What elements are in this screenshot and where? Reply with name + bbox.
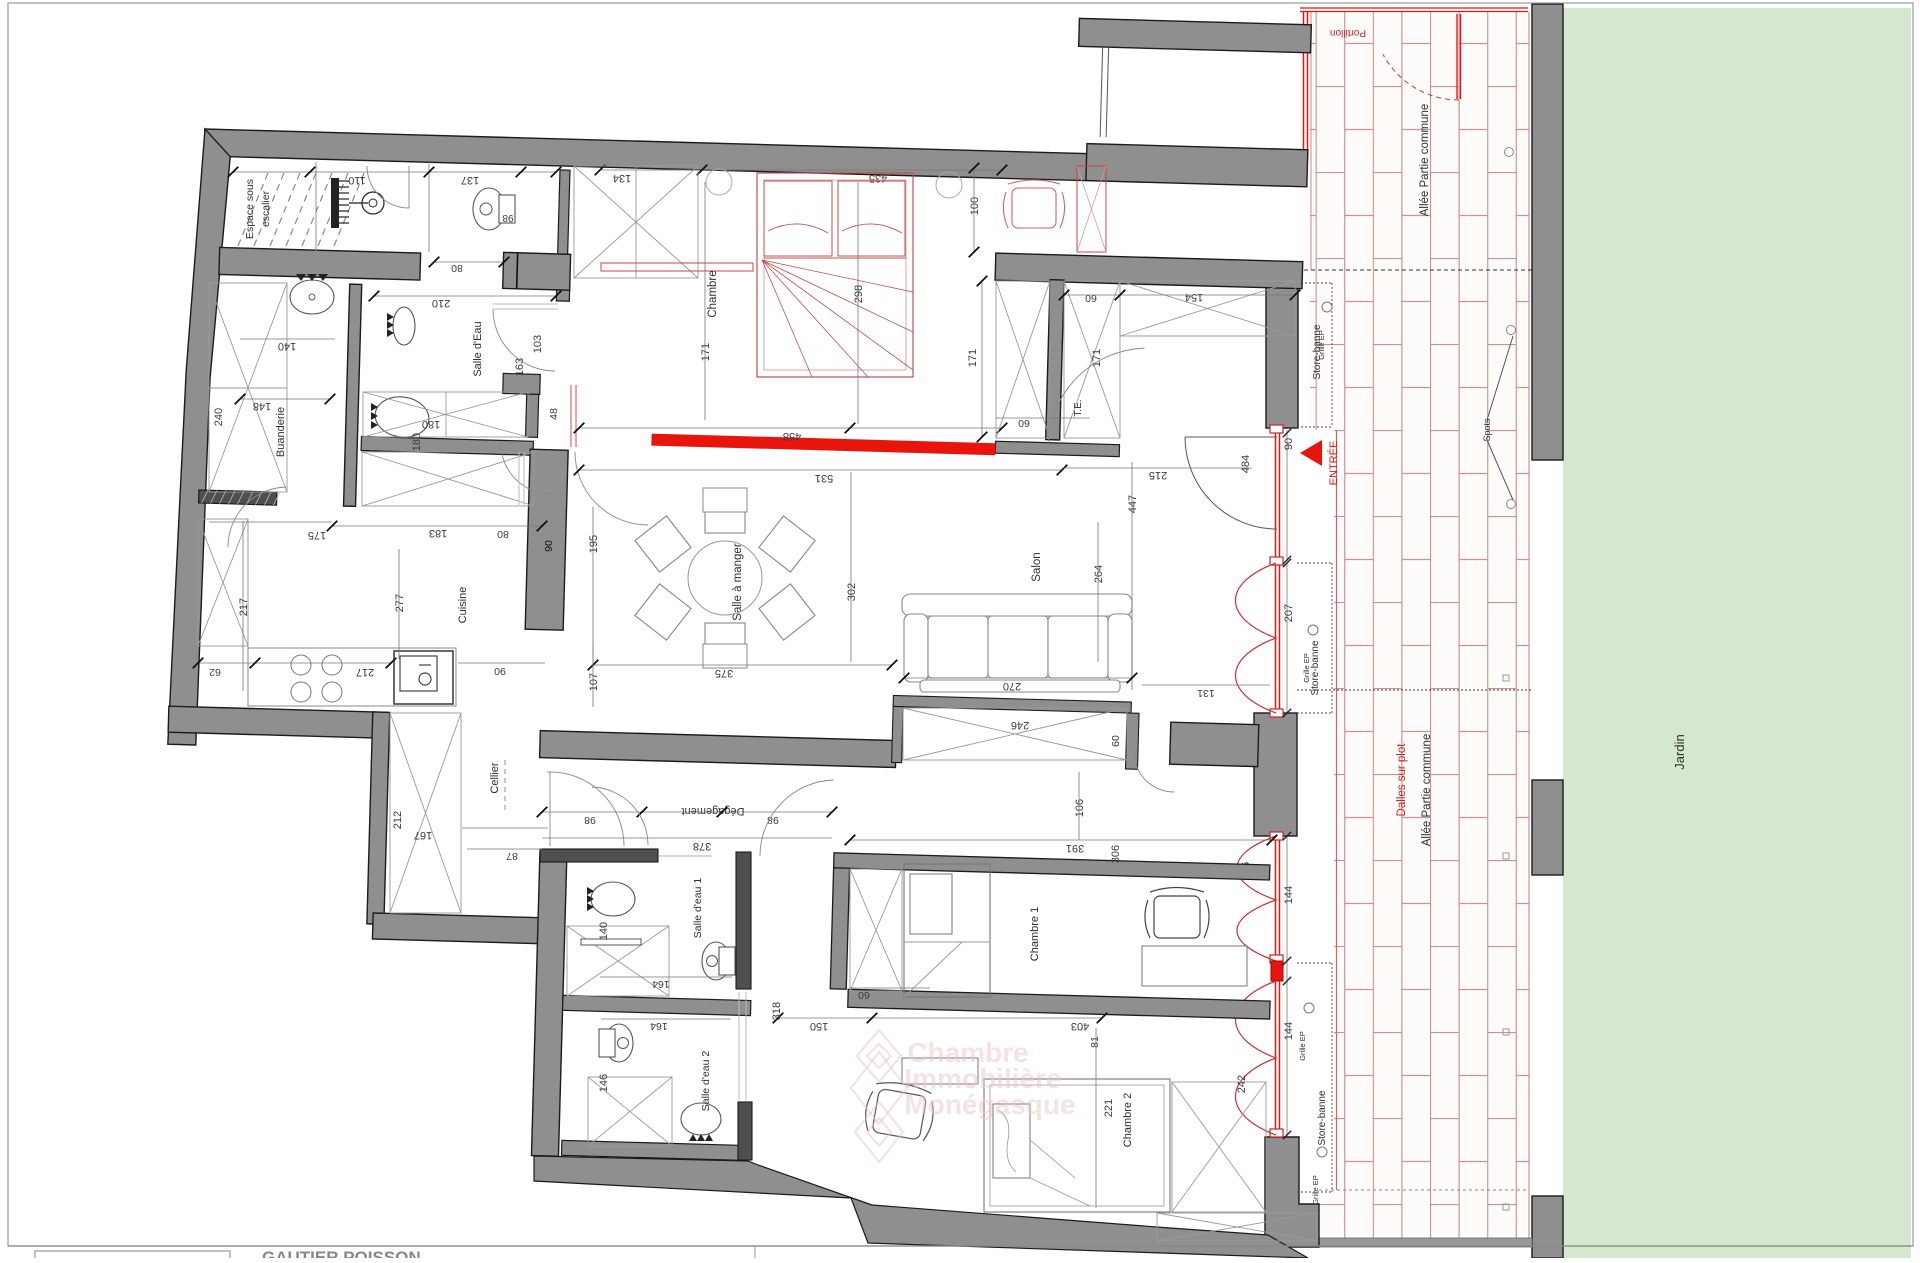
svg-text:Espace sous: Espace sous: [244, 179, 256, 239]
svg-text:Cellier: Cellier: [489, 762, 501, 794]
svg-text:140: 140: [278, 340, 296, 352]
svg-text:87: 87: [506, 850, 518, 862]
svg-text:Dalles sur plot: Dalles sur plot: [1396, 743, 1408, 817]
svg-text:Salle d'eau 1: Salle d'eau 1: [692, 878, 704, 939]
svg-text:154: 154: [1185, 291, 1203, 303]
svg-text:98: 98: [502, 212, 514, 223]
svg-text:180: 180: [411, 433, 423, 451]
svg-text:Chambre 1: Chambre 1: [1029, 907, 1041, 961]
svg-text:403: 403: [1071, 1020, 1089, 1032]
svg-text:escalier: escalier: [260, 190, 272, 227]
svg-text:144: 144: [1283, 886, 1295, 904]
svg-text:131: 131: [1197, 687, 1215, 699]
svg-text:183: 183: [429, 527, 447, 539]
svg-text:378: 378: [693, 840, 711, 852]
svg-text:90: 90: [1283, 438, 1295, 450]
svg-text:GAUTIER POISSON: GAUTIER POISSON: [262, 1248, 421, 1258]
svg-text:484: 484: [1240, 455, 1252, 473]
svg-text:Chambre 2: Chambre 2: [1122, 1093, 1134, 1147]
svg-text:Buanderie: Buanderie: [275, 407, 287, 457]
svg-text:298: 298: [853, 285, 865, 303]
svg-text:106: 106: [1074, 799, 1086, 817]
svg-text:270: 270: [1003, 680, 1021, 692]
svg-text:60: 60: [1018, 417, 1030, 429]
svg-text:110: 110: [348, 174, 366, 186]
svg-text:Grille EP: Grille EP: [1311, 1175, 1320, 1205]
svg-text:306: 306: [1110, 845, 1122, 863]
svg-text:Portillon: Portillon: [1330, 27, 1366, 38]
svg-text:Spots: Spots: [1482, 418, 1492, 442]
svg-text:140: 140: [598, 922, 610, 940]
svg-text:Grille EP: Grille EP: [1298, 1031, 1307, 1061]
svg-text:90: 90: [494, 665, 506, 677]
svg-text:Monégasque: Monégasque: [904, 1089, 1075, 1120]
svg-text:375: 375: [715, 667, 733, 679]
svg-text:150: 150: [810, 1020, 828, 1032]
svg-text:277: 277: [394, 594, 406, 612]
svg-text:195: 195: [588, 535, 600, 553]
svg-text:435: 435: [869, 172, 887, 184]
svg-text:60: 60: [1110, 735, 1122, 747]
svg-text:246: 246: [1011, 719, 1029, 731]
svg-text:80: 80: [451, 262, 463, 274]
svg-text:144: 144: [1283, 1022, 1295, 1040]
svg-text:221: 221: [1103, 1099, 1115, 1117]
svg-text:98: 98: [584, 814, 596, 826]
svg-text:207: 207: [1283, 604, 1295, 622]
svg-text:242: 242: [1236, 1075, 1248, 1093]
svg-text:60: 60: [1085, 292, 1097, 304]
svg-text:Allée Partie commune: Allée Partie commune: [1419, 104, 1431, 217]
svg-text:137: 137: [461, 174, 479, 186]
svg-text:90: 90: [543, 540, 555, 552]
svg-text:Cuisine: Cuisine: [457, 587, 469, 624]
svg-text:60: 60: [858, 989, 870, 1001]
svg-text:Grille EP: Grille EP: [1317, 330, 1326, 360]
svg-text:48: 48: [548, 408, 560, 420]
svg-text:391: 391: [1066, 842, 1084, 854]
svg-text:107: 107: [588, 673, 600, 691]
svg-text:240: 240: [213, 408, 225, 426]
svg-text:Salle à manger: Salle à manger: [732, 543, 744, 621]
svg-text:215: 215: [1149, 469, 1167, 481]
svg-text:164: 164: [652, 978, 670, 990]
svg-text:Salle d'Eau: Salle d'Eau: [472, 321, 484, 376]
svg-text:Store-banne: Store-banne: [1317, 1090, 1328, 1145]
svg-text:302: 302: [846, 583, 858, 601]
svg-text:458: 458: [783, 430, 801, 442]
svg-text:Allée Partie commune: Allée Partie commune: [1421, 734, 1433, 847]
svg-text:100: 100: [969, 197, 981, 215]
svg-text:217: 217: [356, 666, 374, 678]
svg-text:Grille EP: Grille EP: [1302, 653, 1311, 683]
svg-text:212: 212: [392, 811, 404, 829]
svg-text:Salon: Salon: [1031, 552, 1043, 581]
svg-text:Dégagement: Dégagement: [682, 805, 745, 817]
svg-text:447: 447: [1127, 495, 1139, 513]
svg-text:167: 167: [414, 829, 432, 841]
svg-text:80: 80: [497, 528, 509, 540]
svg-text:T.E.: T.E.: [1073, 399, 1084, 416]
svg-text:171: 171: [700, 343, 712, 361]
svg-text:Jardin: Jardin: [1672, 734, 1687, 769]
svg-text:Salle d'eau 2: Salle d'eau 2: [700, 1051, 712, 1112]
svg-text:175: 175: [308, 529, 326, 541]
svg-text:134: 134: [613, 172, 631, 184]
svg-text:ENTRÉE: ENTRÉE: [1327, 441, 1340, 486]
svg-text:103: 103: [532, 335, 544, 353]
svg-text:210: 210: [432, 297, 450, 309]
svg-text:148: 148: [253, 400, 271, 412]
svg-text:164: 164: [650, 1020, 668, 1032]
svg-text:264: 264: [1093, 565, 1105, 583]
svg-text:318: 318: [771, 1002, 783, 1020]
svg-text:531: 531: [815, 472, 833, 484]
svg-text:217: 217: [238, 598, 250, 616]
svg-text:146: 146: [598, 1074, 610, 1092]
svg-text:62: 62: [209, 666, 221, 678]
svg-text:81: 81: [1089, 1036, 1101, 1048]
svg-text:180: 180: [422, 418, 440, 430]
svg-text:171: 171: [967, 349, 979, 367]
svg-text:Store-banne: Store-banne: [1310, 640, 1321, 695]
svg-text:Chambre: Chambre: [707, 270, 719, 317]
